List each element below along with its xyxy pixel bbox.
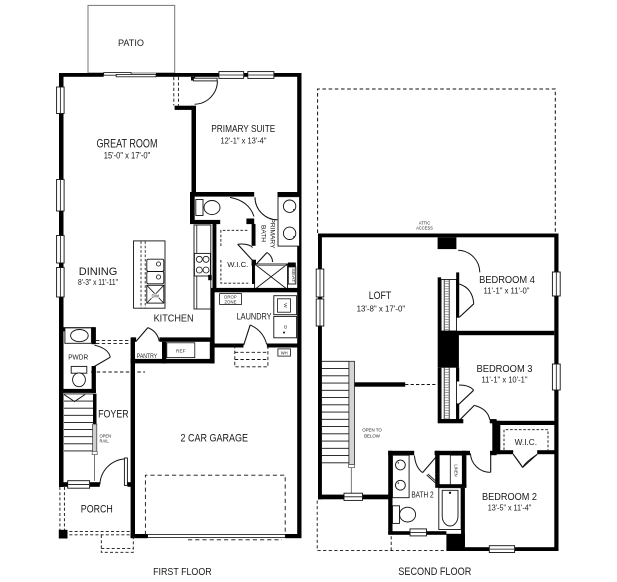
svg-text:LINEN: LINEN <box>454 464 459 476</box>
svg-text:W.I.C.: W.I.C. <box>515 438 537 447</box>
svg-text:LAUNDRY: LAUNDRY <box>237 312 272 322</box>
svg-text:13'-5" x 11'-4": 13'-5" x 11'-4" <box>488 504 532 513</box>
svg-text:11'-1" x 11'-0": 11'-1" x 11'-0" <box>484 286 530 295</box>
svg-text:W: W <box>283 303 288 308</box>
svg-text:ACCESS: ACCESS <box>416 226 433 231</box>
svg-text:BEDROOM 4: BEDROOM 4 <box>479 275 535 286</box>
svg-text:PWDR: PWDR <box>68 352 88 361</box>
svg-text:12'-1" x 13'-4": 12'-1" x 13'-4" <box>221 135 267 145</box>
svg-text:BATH: BATH <box>259 225 266 242</box>
svg-text:15'-0" x 17'-0": 15'-0" x 17'-0" <box>104 150 151 160</box>
svg-text:8'-3" x 11'-11": 8'-3" x 11'-11" <box>78 277 118 287</box>
svg-text:13'-8" x 17'-0": 13'-8" x 17'-0" <box>357 304 406 314</box>
svg-text:BEDROOM 3: BEDROOM 3 <box>477 364 533 375</box>
svg-text:2 CAR GARAGE: 2 CAR GARAGE <box>180 433 248 445</box>
svg-text:BEDROOM 2: BEDROOM 2 <box>482 492 537 503</box>
svg-text:SECOND FLOOR: SECOND FLOOR <box>398 566 471 578</box>
svg-text:W.I.C.: W.I.C. <box>227 260 248 269</box>
svg-text:FOYER: FOYER <box>98 409 129 421</box>
svg-text:GREAT ROOM: GREAT ROOM <box>97 136 158 150</box>
svg-text:PATIO: PATIO <box>118 38 144 48</box>
svg-text:PRIMARY SUITE: PRIMARY SUITE <box>211 124 275 135</box>
svg-text:WH: WH <box>281 351 288 356</box>
svg-text:11'-1" x 10'-1": 11'-1" x 10'-1" <box>482 375 528 384</box>
svg-text:KITCHEN: KITCHEN <box>154 314 194 325</box>
svg-text:ZONE: ZONE <box>224 299 236 304</box>
svg-text:PORCH: PORCH <box>81 504 113 516</box>
svg-text:PRIMARY: PRIMARY <box>269 219 276 250</box>
svg-text:DW: DW <box>151 293 159 298</box>
svg-text:BELOW: BELOW <box>364 433 381 438</box>
svg-text:OPEN TO: OPEN TO <box>362 428 382 433</box>
svg-text:BATH 2: BATH 2 <box>411 490 433 499</box>
svg-text:FIRST FLOOR: FIRST FLOOR <box>153 567 212 578</box>
svg-text:LOFT: LOFT <box>369 290 392 302</box>
svg-text:RAIL: RAIL <box>100 439 110 444</box>
svg-text:REF: REF <box>176 349 186 354</box>
svg-text:SEAT: SEAT <box>290 268 296 283</box>
